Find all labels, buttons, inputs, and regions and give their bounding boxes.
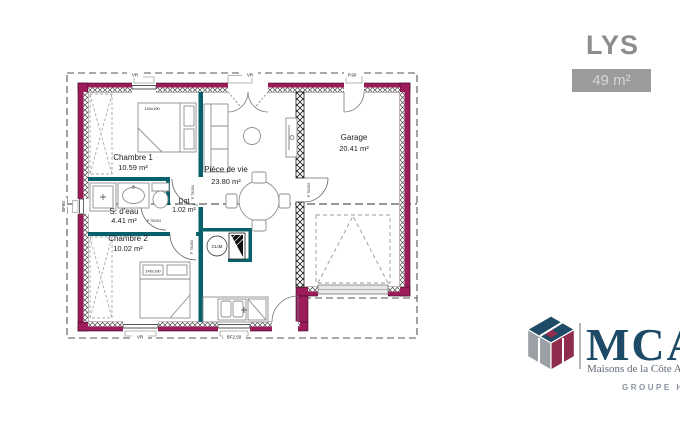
vanity-sink [118,183,149,208]
room-label-garage: Garage [341,133,368,142]
vr-tag-bottom: VR [137,335,144,340]
left-window-tag: BF60 [61,201,66,212]
bed1-size-label: 140x190 [144,106,160,111]
garage-door [316,215,390,294]
wardrobe-1 [90,94,112,174]
room-label-sdeau: S. d'eau [109,207,138,216]
plan-sheet: Chambre 1 10.59 m² S. d'eau 4.41 m² Cham… [0,0,680,425]
ped-door-tag: P.90 [348,73,357,78]
bed2-size-label: 140x190 [145,269,161,274]
water-heater [229,233,245,259]
logo-divider [579,323,581,369]
room-area-chambre2: 10.02 m² [113,244,143,253]
toilet [152,183,169,208]
room-area-piecedevie: 23.80 m² [211,177,241,186]
kitchen-counter [203,297,268,322]
room-label-dgt: Dgt [179,198,190,205]
clim-label: CLIM [212,244,223,249]
room-label-chambre2: Chambre 2 [108,234,148,243]
kitchen-window-tag: BF2.50 [227,335,242,340]
vr-tag-top1: VR [132,73,139,78]
logo-tagline: Maisons de la Côte Atlantique [587,363,680,375]
room-area-garage: 20.41 m² [339,144,369,153]
door-tag-3: P 75/204 [190,240,194,254]
mca-cube-logo [522,315,582,375]
logo-group-name: GROUPE HEXAOM [622,383,680,392]
door-tag-1: P 75/204 [191,185,195,199]
door-tag-4: P 75/204 [307,183,311,197]
vr-tag-top2: VR [247,73,254,78]
side-table [244,128,261,145]
door-tag-2: P 75/204 [147,219,161,223]
room-label-piecedevie: Pièce de vie [204,165,248,174]
plan-title: LYS [540,30,680,61]
room-label-chambre1: Chambre 1 [113,153,153,162]
room-area-sdeau: 4.41 m² [111,216,137,225]
room-area-dgt: 1.02 m² [172,207,196,214]
wardrobe-2 [90,237,112,318]
sofa [204,104,228,172]
tv-unit [286,118,297,157]
room-area-chambre1: 10.59 m² [118,163,148,172]
area-badge: 49 m² [572,69,651,92]
